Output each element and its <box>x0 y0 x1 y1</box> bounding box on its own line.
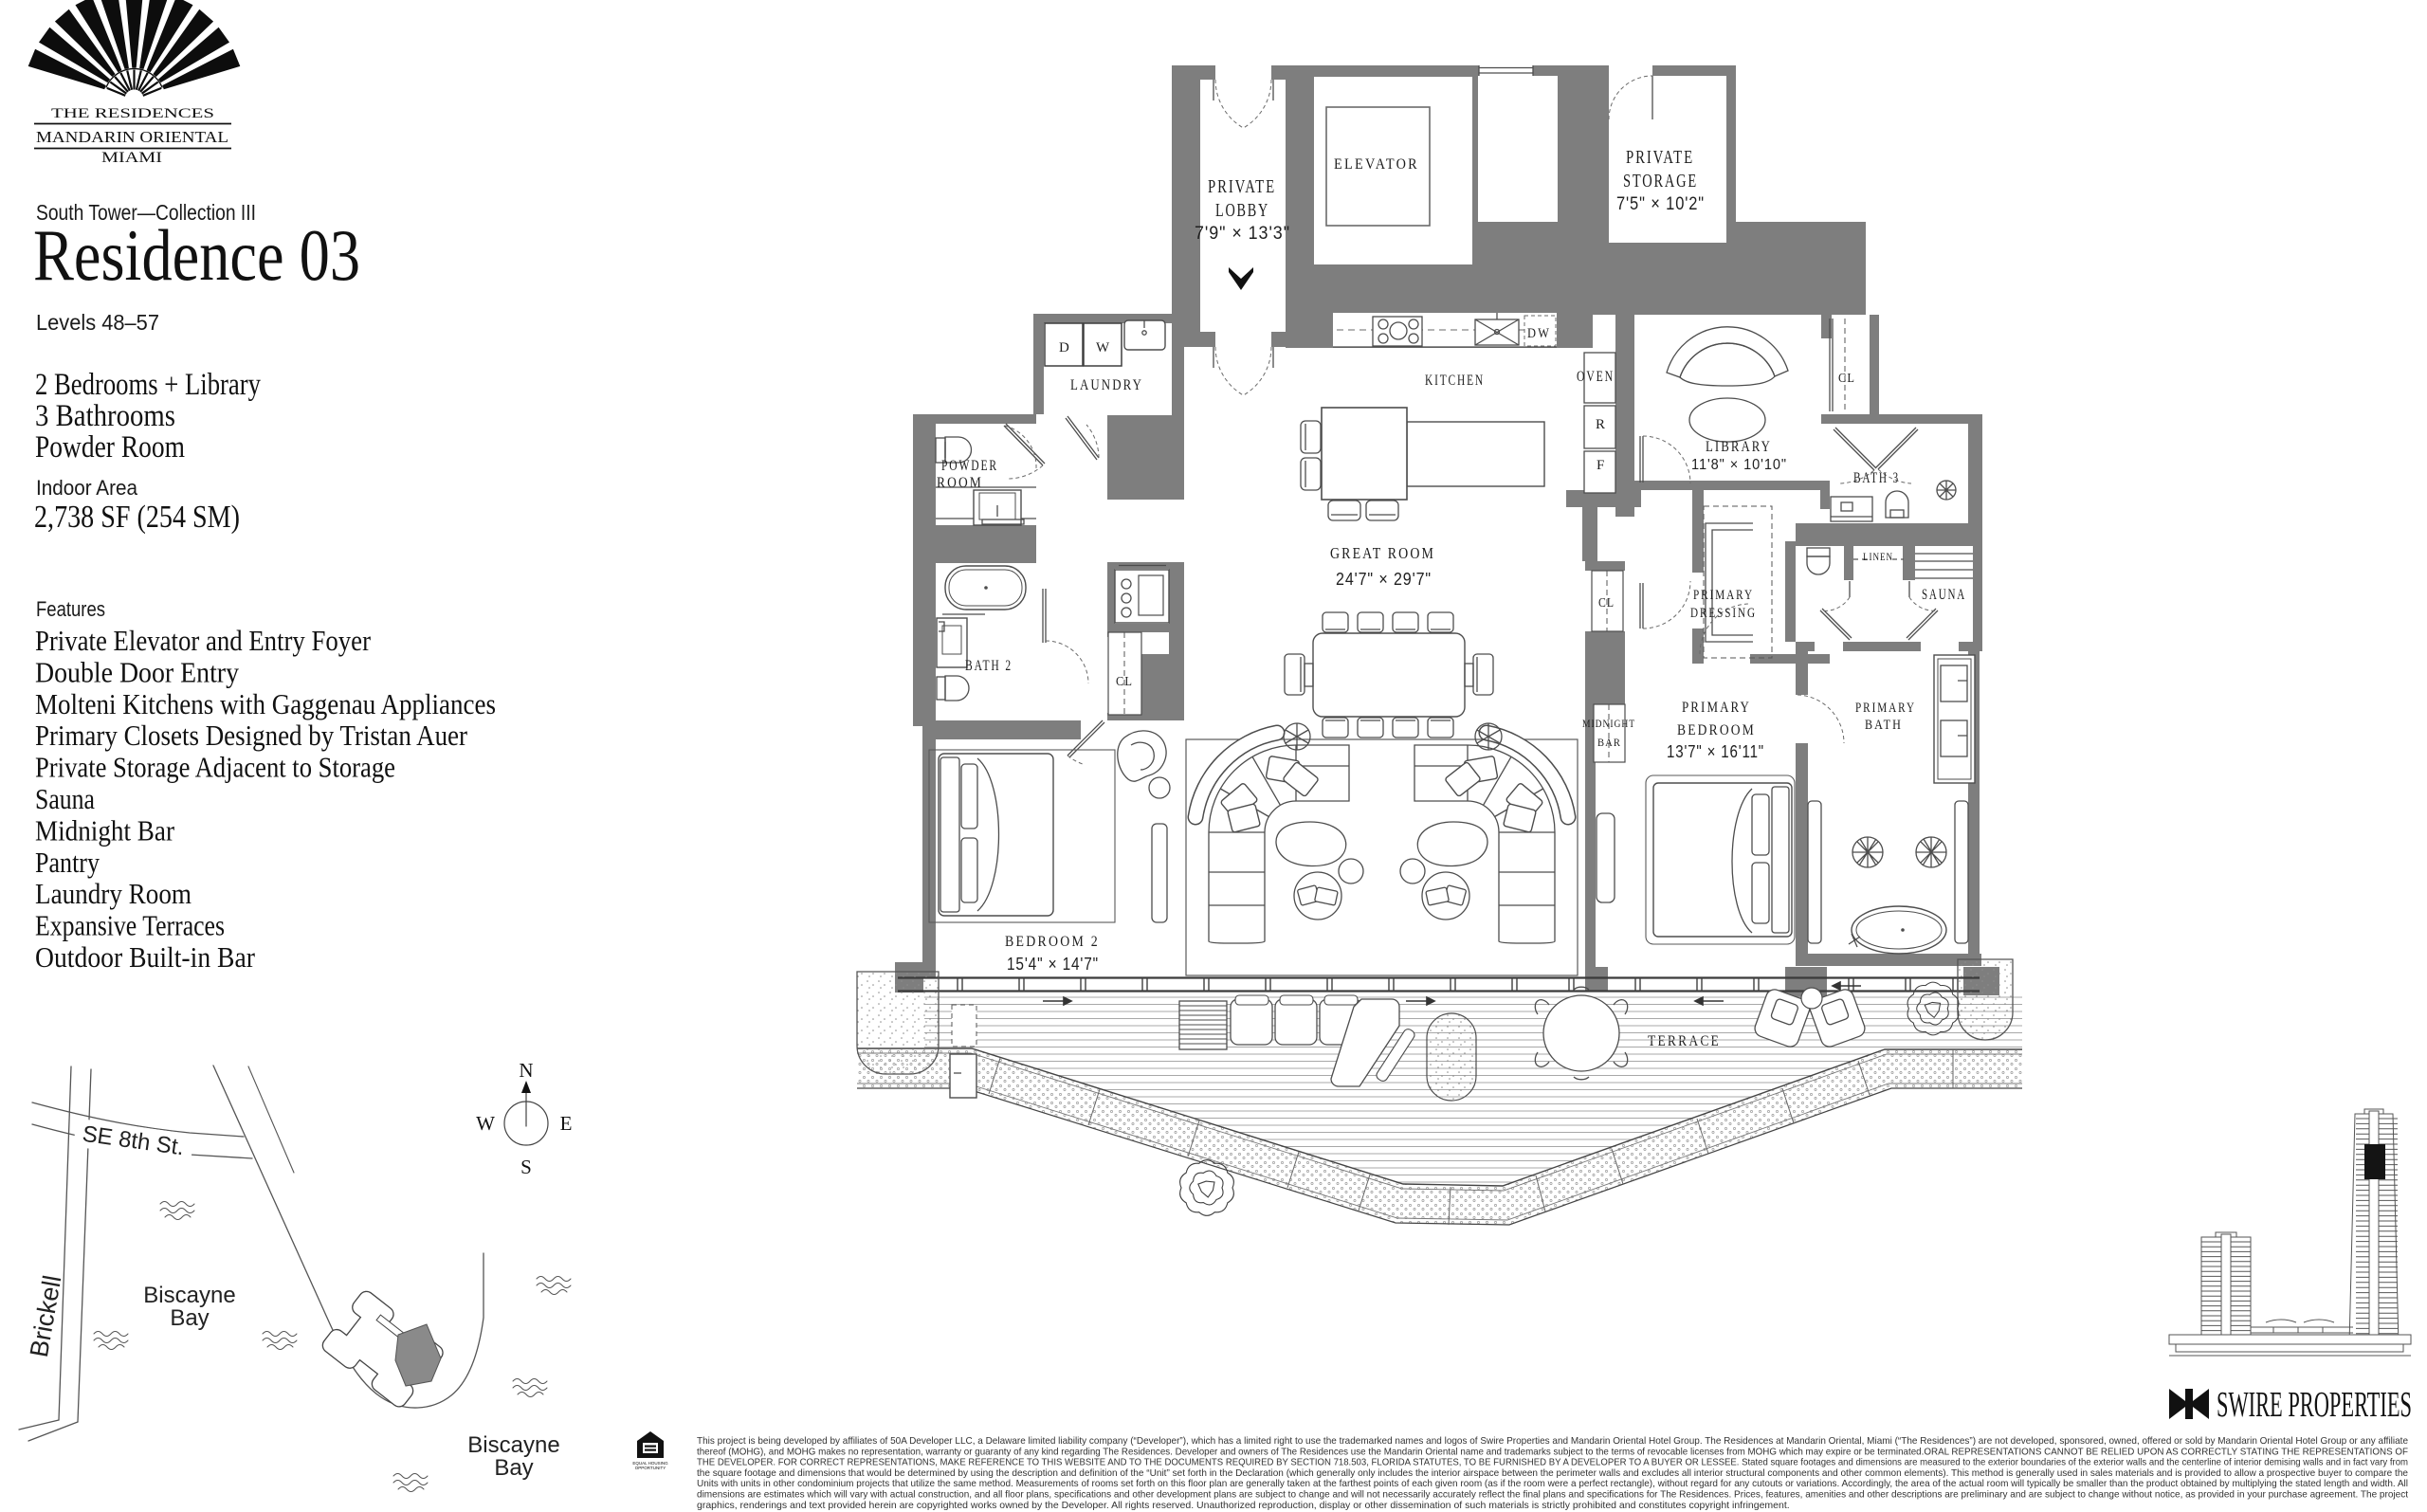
svg-text:BATH 2: BATH 2 <box>965 658 1013 674</box>
svg-text:Pantry: Pantry <box>35 846 100 879</box>
svg-text:S: S <box>520 1156 532 1178</box>
svg-text:Units with units in other cond: Units with units in other condominium pr… <box>697 1478 2408 1489</box>
svg-text:W: W <box>1096 340 1110 355</box>
svg-text:W: W <box>476 1112 495 1135</box>
svg-text:This project is being develope: This project is being developed by affil… <box>697 1435 2408 1447</box>
svg-text:MIDNIGHT: MIDNIGHT <box>1582 717 1635 730</box>
svg-text:LIBRARY: LIBRARY <box>1706 439 1772 455</box>
svg-text:OVEN: OVEN <box>1577 369 1615 385</box>
svg-text:PRIVATE: PRIVATE <box>1208 176 1276 197</box>
svg-text:3 Bathrooms: 3 Bathrooms <box>35 399 175 433</box>
svg-text:ELEVATOR: ELEVATOR <box>1334 156 1419 173</box>
svg-text:SWIRE PROPERTIES: SWIRE PROPERTIES <box>2217 1385 2412 1425</box>
svg-text:Bay: Bay <box>494 1455 533 1481</box>
svg-text:Outdoor Built-in Bar: Outdoor Built-in Bar <box>35 940 256 974</box>
svg-text:Features: Features <box>36 597 105 621</box>
svg-text:THE RESIDENCES: THE RESIDENCES <box>51 106 214 121</box>
svg-text:CL: CL <box>1116 675 1133 689</box>
svg-text:Powder Room: Powder Room <box>35 430 185 465</box>
svg-text:Midnight Bar: Midnight Bar <box>35 813 175 847</box>
svg-text:Private Storage Adjacent to St: Private Storage Adjacent to Storage <box>35 751 395 784</box>
svg-text:BATH 3: BATH 3 <box>1853 470 1900 486</box>
svg-text:STORAGE: STORAGE <box>1623 171 1698 191</box>
svg-text:2,738 SF (254 SM): 2,738 SF (254 SM) <box>34 500 240 535</box>
svg-text:GREAT ROOM: GREAT ROOM <box>1330 544 1435 562</box>
svg-text:N: N <box>519 1059 533 1082</box>
svg-text:KITCHEN: KITCHEN <box>1425 373 1485 389</box>
svg-text:LOBBY: LOBBY <box>1215 200 1269 221</box>
svg-text:SAUNA: SAUNA <box>1922 587 1966 603</box>
svg-text:BEDROOM: BEDROOM <box>1677 722 1756 738</box>
svg-text:E: E <box>560 1112 573 1135</box>
svg-text:ROOM: ROOM <box>937 475 983 491</box>
svg-text:Bay: Bay <box>170 1305 209 1331</box>
svg-text:F: F <box>1597 458 1607 473</box>
svg-text:THE DEVELOPER. FOR CORRECT RE: THE DEVELOPER. FOR CORRECT REPRESENTATIO… <box>697 1457 2408 1468</box>
svg-text:dimensions are estimates which: dimensions are estimates which will vary… <box>697 1489 2408 1501</box>
svg-text:BATH: BATH <box>1865 718 1903 733</box>
svg-text:POWDER: POWDER <box>941 458 998 474</box>
svg-text:MANDARIN ORIENTAL: MANDARIN ORIENTAL <box>36 128 228 146</box>
svg-text:MIAMI: MIAMI <box>101 150 162 166</box>
svg-text:Double Door Entry: Double Door Entry <box>35 655 239 688</box>
svg-text:Residence 03: Residence 03 <box>33 214 360 296</box>
svg-text:LAUNDRY: LAUNDRY <box>1070 377 1143 393</box>
svg-text:PRIVATE: PRIVATE <box>1626 147 1694 168</box>
svg-text:the square footage and dimensi: the square footage and dimensions that w… <box>697 1467 2408 1479</box>
svg-text:thereof (MOHG), and MOHG makes: thereof (MOHG), and MOHG makes no repres… <box>697 1446 2408 1457</box>
svg-text:Biscayne: Biscayne <box>143 1283 235 1308</box>
svg-text:graphics, renderings and text: graphics, renderings and text provided h… <box>697 1500 1790 1511</box>
svg-text:PRIMARY: PRIMARY <box>1855 701 1916 716</box>
svg-text:7'5" × 10'2": 7'5" × 10'2" <box>1616 194 1705 214</box>
svg-text:BAR: BAR <box>1597 736 1621 749</box>
svg-text:OPPORTUNITY: OPPORTUNITY <box>635 1466 666 1470</box>
svg-text:13'7" × 16'11": 13'7" × 16'11" <box>1667 742 1764 761</box>
svg-text:DRESSING: DRESSING <box>1690 606 1757 621</box>
svg-text:15'4" × 14'7": 15'4" × 14'7" <box>1007 955 1099 974</box>
svg-text:Private Elevator and Entry Foy: Private Elevator and Entry Foyer <box>35 624 372 657</box>
svg-text:CL: CL <box>1838 372 1855 386</box>
svg-text:2 Bedrooms + Library: 2 Bedrooms + Library <box>35 368 261 402</box>
svg-text:Indoor Area: Indoor Area <box>36 476 138 500</box>
svg-text:CL: CL <box>1598 596 1615 610</box>
svg-text:Biscayne: Biscayne <box>467 1432 559 1458</box>
svg-text:Laundry Room: Laundry Room <box>35 877 192 910</box>
svg-text:11'8" × 10'10": 11'8" × 10'10" <box>1691 457 1787 473</box>
svg-text:PRIMARY: PRIMARY <box>1682 700 1751 716</box>
svg-text:R: R <box>1596 417 1608 432</box>
svg-text:BEDROOM 2: BEDROOM 2 <box>1005 934 1100 950</box>
svg-text:Molteni Kitchens with Gaggenau: Molteni Kitchens with Gaggenau Appliance… <box>35 687 496 720</box>
svg-text:PRIMARY: PRIMARY <box>1693 588 1754 603</box>
svg-text:Expansive Terraces: Expansive Terraces <box>35 909 225 942</box>
svg-text:Primary Closets Designed by Tr: Primary Closets Designed by Tristan Auer <box>35 719 468 752</box>
svg-text:D: D <box>1059 340 1070 355</box>
svg-text:7'9" × 13'3": 7'9" × 13'3" <box>1195 224 1290 244</box>
svg-text:24'7" × 29'7": 24'7" × 29'7" <box>1336 570 1432 589</box>
svg-text:DW: DW <box>1527 326 1551 341</box>
svg-text:Levels 48–57: Levels 48–57 <box>36 310 159 335</box>
svg-text:Sauna: Sauna <box>35 782 95 815</box>
svg-text:LINEN: LINEN <box>1863 552 1893 563</box>
